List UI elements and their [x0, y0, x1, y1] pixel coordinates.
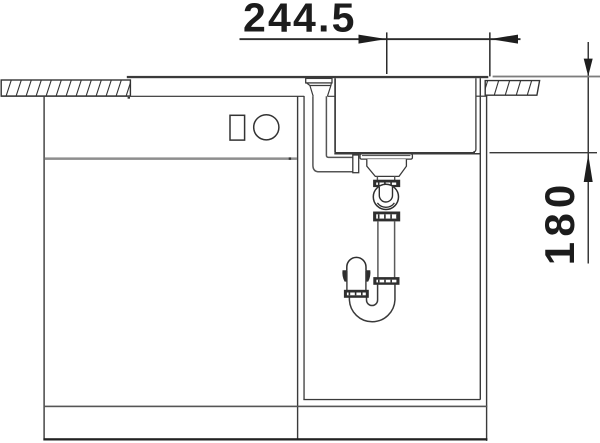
svg-text:180: 180	[536, 180, 583, 266]
svg-text:244.5: 244.5	[243, 0, 357, 41]
